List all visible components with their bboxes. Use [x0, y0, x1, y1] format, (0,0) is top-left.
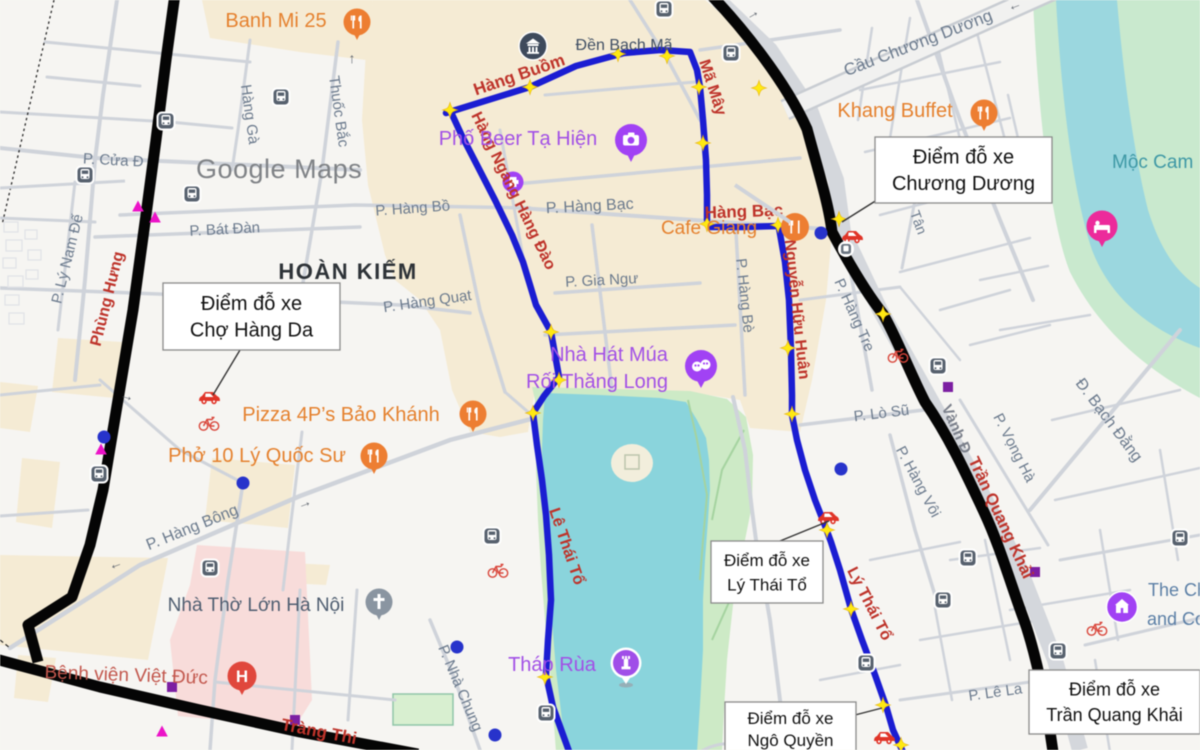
svg-text:HOÀN KIẾM: HOÀN KIẾM: [278, 259, 417, 284]
svg-text:Điểm đỗ xe: Điểm đỗ xe: [201, 292, 302, 315]
svg-text:Ngô Quyền: Ngô Quyền: [748, 731, 834, 750]
svg-text:Nhà Thờ Lớn Hà Nội: Nhà Thờ Lớn Hà Nội: [168, 595, 345, 616]
svg-text:P. Cửa Đ: P. Cửa Đ: [83, 150, 145, 170]
svg-text:Điểm đỗ xe: Điểm đỗ xe: [913, 145, 1014, 168]
svg-text:Điểm đỗ xe: Điểm đỗ xe: [748, 709, 834, 728]
svg-text:Phố Beer Tạ Hiện: Phố Beer Tạ Hiện: [439, 128, 598, 150]
svg-text:Nhà Hát Múa: Nhà Hát Múa: [550, 344, 669, 366]
svg-text:Lý Thái Tổ: Lý Thái Tổ: [727, 576, 807, 595]
svg-text:Cafe Giang: Cafe Giang: [661, 218, 757, 239]
svg-text:Mộc Cam: Mộc Cam: [1112, 152, 1193, 173]
svg-text:Google Maps: Google Maps: [196, 154, 362, 184]
svg-text:Chợ Hàng Da: Chợ Hàng Da: [190, 320, 314, 342]
svg-text:Điểm đỗ xe: Điểm đỗ xe: [724, 551, 810, 570]
svg-text:Chương Dương: Chương Dương: [892, 173, 1035, 195]
svg-text:Trần Quang Khải: Trần Quang Khải: [1046, 705, 1182, 725]
svg-text:Điểm đỗ xe: Điểm đỗ xe: [1069, 679, 1160, 700]
svg-text:↑: ↑: [349, 50, 356, 66]
svg-text:Khang Buffet: Khang Buffet: [837, 100, 953, 122]
svg-text:Đền Bạch Mã: Đền Bạch Mã: [576, 37, 673, 54]
svg-text:The Ch: The Ch: [1148, 580, 1200, 600]
svg-text:H: H: [236, 667, 248, 686]
svg-text:Banh Mi 25: Banh Mi 25: [225, 10, 326, 32]
svg-text:and Co: and Co: [1147, 609, 1200, 629]
svg-text:Rối Thăng Long: Rối Thăng Long: [526, 371, 668, 393]
svg-text:Pizza 4P’s Bảo Khánh: Pizza 4P’s Bảo Khánh: [242, 404, 440, 426]
svg-text:Tháp Rùa: Tháp Rùa: [508, 654, 597, 676]
svg-text:Phở 10 Lý Quốc Sư: Phở 10 Lý Quốc Sư: [168, 445, 346, 467]
